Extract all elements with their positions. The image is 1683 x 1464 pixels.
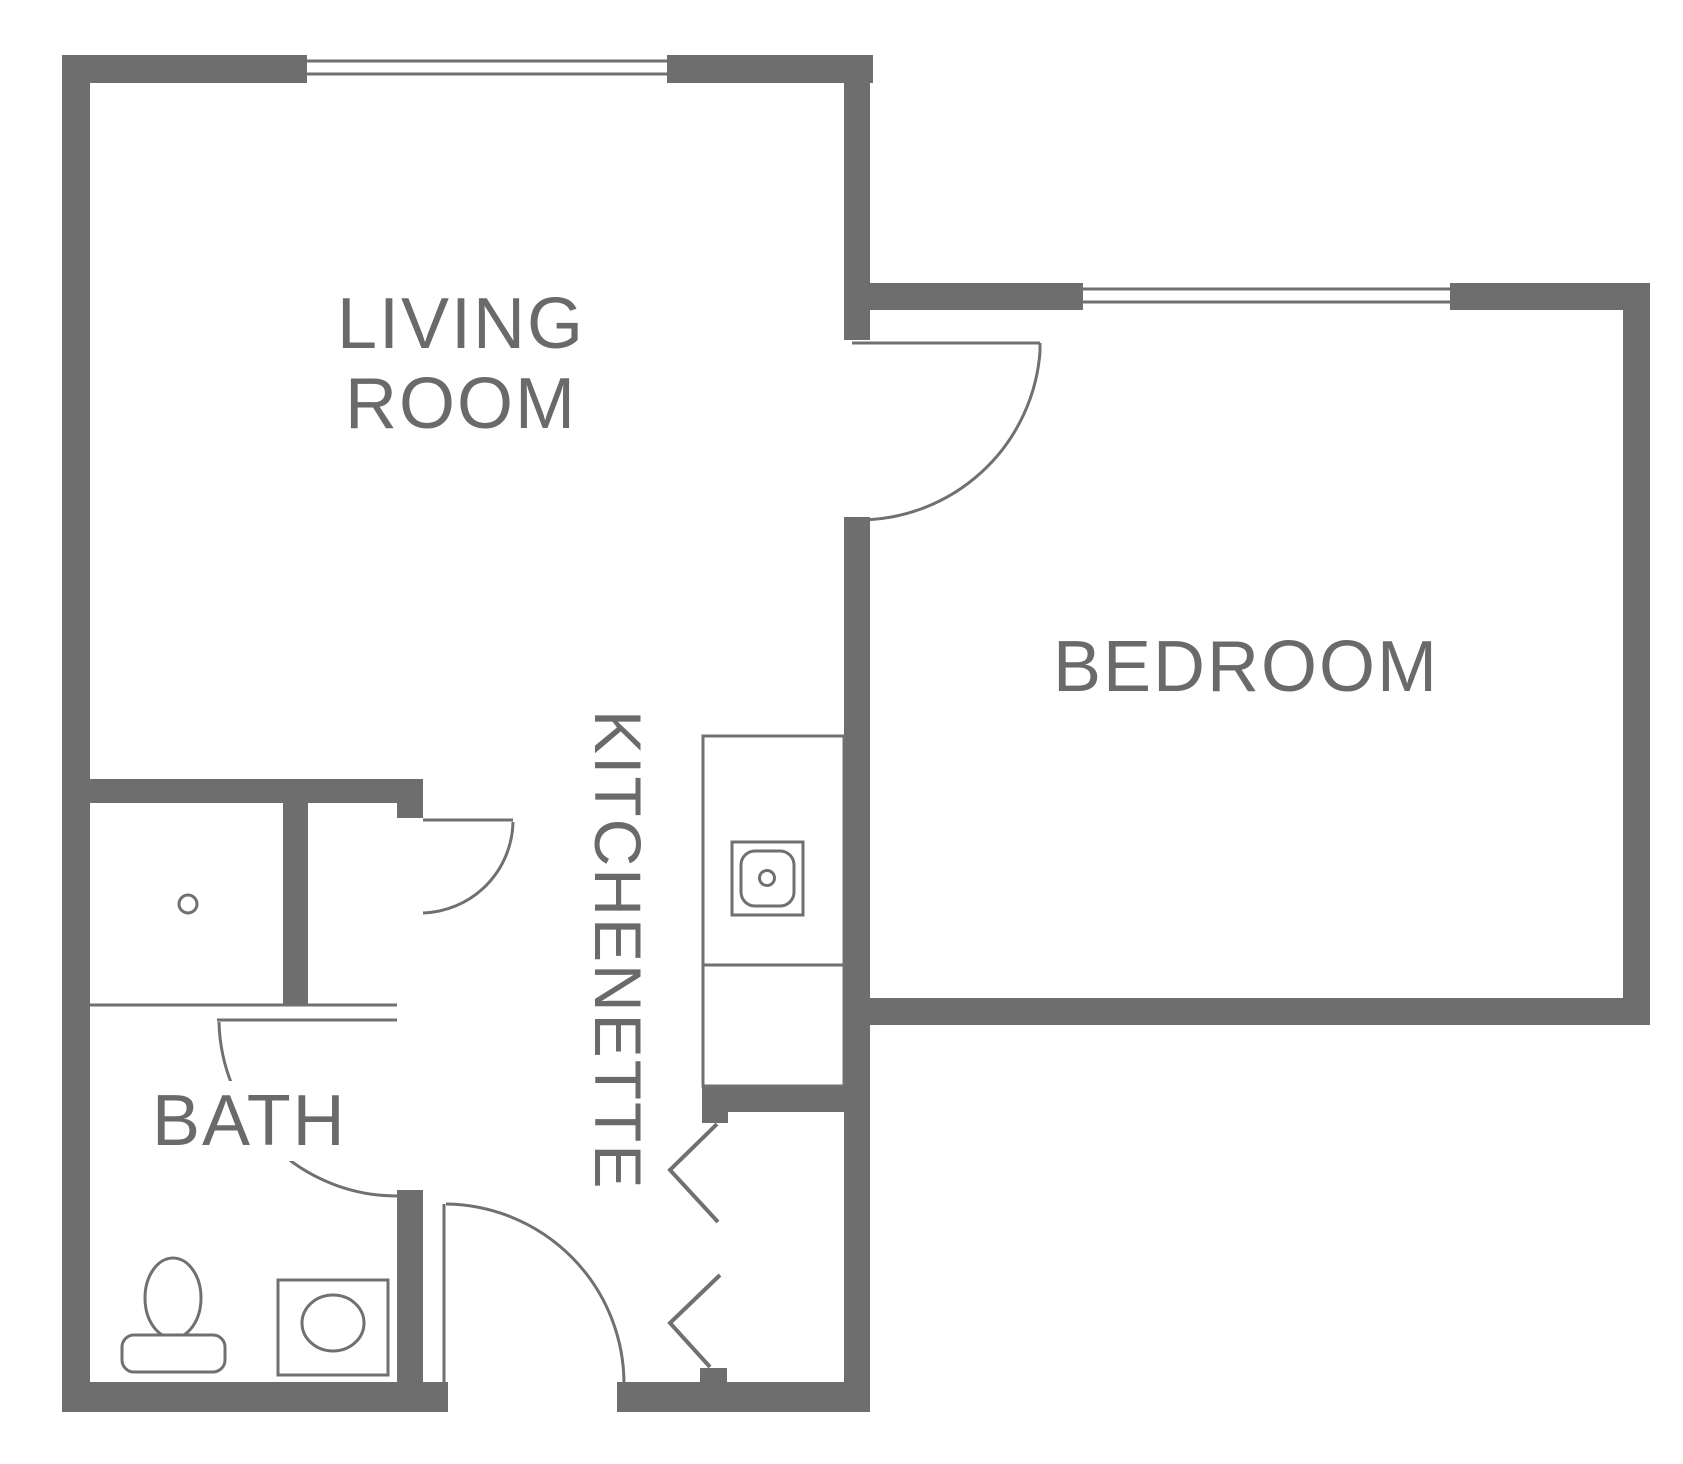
kitchen-sink-icon (732, 842, 803, 915)
wall-bath-top (62, 779, 423, 803)
living-room-label-line1: LIVING (311, 284, 611, 364)
interior-walls (62, 83, 870, 1412)
entry-door-icon (444, 1204, 624, 1384)
wall-top-left (62, 55, 307, 83)
toilet-icon (122, 1258, 225, 1372)
wall-bottom-right (617, 1382, 870, 1412)
floorplan-canvas: LIVING ROOM BEDROOM KITCHENETTE BATH (0, 0, 1683, 1464)
closet-bifold-doors-icon (670, 1124, 720, 1367)
kitchenette-label: KITCHENETTE (585, 710, 651, 1190)
wall-closet-top-stub (702, 1112, 728, 1123)
wall-bedroom-bottom (870, 998, 1650, 1025)
bedroom-window-icon (1083, 289, 1450, 302)
wall-divider (844, 517, 870, 1412)
wall-shower-right (283, 803, 308, 1005)
wall-bedroom-right (1623, 283, 1650, 1025)
wall-living-right-upper (844, 83, 870, 340)
living-room-window-icon (307, 61, 667, 74)
shower-icon (90, 895, 397, 1005)
living-room-label-line2: ROOM (311, 364, 611, 444)
bathroom-sink-icon (278, 1280, 388, 1375)
wall-left (62, 55, 90, 1412)
wall-bath-hall (397, 1190, 423, 1382)
vanity-door-icon (423, 820, 513, 913)
outer-walls (62, 55, 873, 1412)
wall-bottom-left (62, 1382, 448, 1412)
floorplan-drawing (0, 0, 1683, 1464)
living-room-label: LIVING ROOM (311, 284, 611, 444)
wall-vanity-stub (397, 803, 423, 818)
bath-label: BATH (148, 1081, 351, 1161)
wall-top-right (667, 55, 873, 83)
wall-closet-top (702, 1086, 870, 1112)
bedroom-door-icon (852, 343, 1040, 520)
wall-closet-bottom-stub (700, 1368, 727, 1382)
kitchenette-counter (703, 736, 844, 1086)
bedroom-label: BEDROOM (1053, 627, 1439, 707)
wall-bedroom-top-left (870, 283, 1083, 310)
wall-bedroom-top-right (1450, 283, 1650, 310)
